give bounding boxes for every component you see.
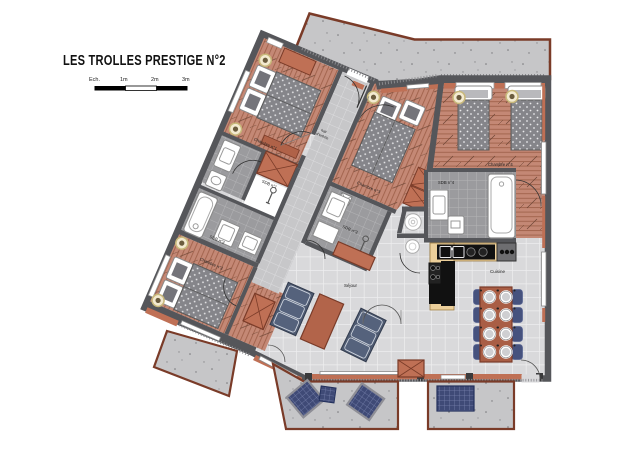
svg-text:2m: 2m xyxy=(151,77,159,83)
svg-text:3m: 3m xyxy=(182,77,190,83)
svg-text:SDB n°4: SDB n°4 xyxy=(438,180,455,185)
svg-text:1m: 1m xyxy=(120,77,128,83)
svg-text:Séjour: Séjour xyxy=(344,283,358,288)
svg-text:Chambre n°4: Chambre n°4 xyxy=(488,162,513,167)
svg-text:LES TROLLES PRESTIGE N°2: LES TROLLES PRESTIGE N°2 xyxy=(63,51,226,68)
svg-text:Ech.: Ech. xyxy=(89,77,100,83)
svg-text:Cuisine: Cuisine xyxy=(490,269,506,274)
